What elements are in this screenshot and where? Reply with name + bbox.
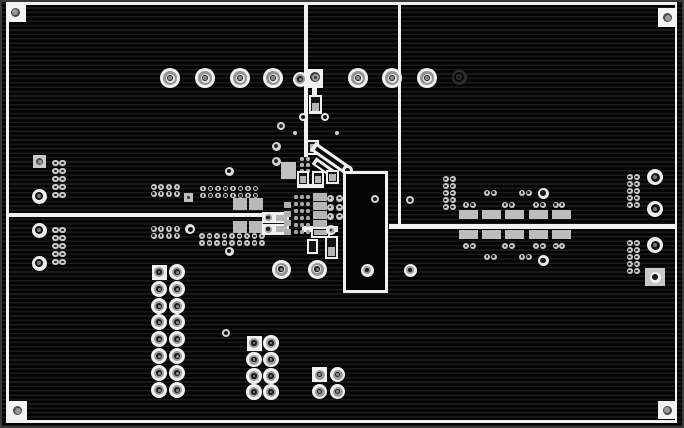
ic-pad-col-left: [284, 202, 291, 208]
via-stitch-grid: [444, 192, 446, 194]
header-pad-grid: [176, 372, 179, 375]
header-pad-grid: [158, 305, 161, 308]
pad-smd-square: [281, 162, 296, 179]
via-stitch-row: [554, 203, 556, 205]
outlined-pad: [300, 176, 306, 183]
pad-smd-square: [233, 198, 247, 210]
outlined-pad: [314, 230, 327, 235]
ic-dot-grid: [300, 195, 303, 198]
via-stitch-grid: [635, 256, 637, 258]
ic-dot-grid: [294, 195, 297, 198]
fiducial-hole-bottom-right: [664, 407, 670, 413]
dot-grid: [306, 163, 309, 166]
ic-dot-grid: [300, 216, 303, 219]
via-small: [323, 115, 327, 119]
via-stitch-grid: [61, 170, 63, 172]
header-pad-grid: [176, 355, 179, 358]
via-stitch-grid: [168, 227, 170, 229]
connector-b-pad-grid: [336, 373, 339, 376]
via-stitch-grid: [61, 253, 63, 255]
header-pad-grid: [158, 389, 161, 392]
via-small: [408, 198, 412, 202]
ic-dot-grid: [300, 202, 303, 205]
via-stitch-grid: [238, 235, 240, 237]
via-stitch-row: [504, 203, 506, 205]
via-medium: [540, 190, 546, 196]
via-large: [280, 268, 283, 271]
via-stitch-grid: [54, 178, 56, 180]
via-small: [373, 197, 377, 201]
via-stitch-grid: [635, 204, 637, 206]
via-stitch-grid: [217, 187, 219, 189]
board-outline-bottom: [6, 420, 676, 424]
via-medium: [365, 268, 369, 272]
pad-smd-rect: [482, 230, 501, 239]
via-stitch-grid: [176, 234, 178, 236]
via-stitch-row: [510, 203, 512, 205]
via-stitch-grid: [247, 187, 249, 189]
via-stitch-grid: [61, 186, 63, 188]
dot: [335, 131, 339, 135]
via-stitch-grid: [176, 227, 178, 229]
via-stitch-grid: [444, 178, 446, 180]
ic-pad-col-left: [284, 220, 291, 226]
via-stitch-grid: [209, 194, 211, 196]
header-pad-grid: [158, 355, 161, 358]
via-stitch-grid: [217, 194, 219, 196]
via-stitch-grid: [61, 229, 63, 231]
outlined-pad: [329, 174, 336, 181]
via-medium: [540, 258, 546, 264]
pad-square-top-center-hole: [314, 76, 317, 79]
board-outline-top: [6, 2, 676, 5]
pad-annular: [653, 207, 657, 211]
via-stitch-grid: [635, 242, 637, 244]
fiducial-hole-top-left: [12, 9, 18, 15]
pad-square-right-hole: [652, 274, 658, 280]
via-stitch-grid: [635, 183, 637, 185]
ic-pad-col-left: [284, 211, 291, 217]
via-stitch-grid: [223, 235, 225, 237]
ic-pad-col-right: [313, 202, 327, 210]
via-stitch-grid: [444, 185, 446, 187]
pad-smd-rect: [529, 230, 548, 239]
pad-smd-rect: [505, 210, 524, 219]
fiducial-hole-top-right: [665, 15, 671, 21]
via-stitch-grid: [628, 197, 630, 199]
via-stitch-grid: [54, 245, 56, 247]
via-stitch-grid: [635, 190, 637, 192]
via-medium: [408, 268, 412, 272]
via-stitch-grid: [635, 270, 637, 272]
via-small: [224, 331, 228, 335]
via-stitch-grid: [61, 178, 63, 180]
via-top-row: [356, 76, 359, 79]
header-pad-grid: [176, 288, 179, 291]
dot-grid: [300, 163, 303, 166]
pad-with-via-ring: [266, 216, 270, 220]
ic-dot-grid: [294, 209, 297, 212]
via-stitch-grid: [239, 187, 241, 189]
board-outline-right: [675, 2, 678, 423]
via-stitch-grid: [628, 176, 630, 178]
via-stitch-grid: [628, 190, 630, 192]
via-stitch-grid: [254, 194, 256, 196]
via-stitch-grid: [152, 192, 154, 194]
dot: [293, 131, 297, 135]
pad-smd-rect: [459, 230, 478, 239]
pad-small-square-dot: [187, 196, 190, 199]
via-stitch-row: [486, 255, 488, 257]
via-stitch-grid: [628, 249, 630, 251]
ic-dot-grid: [306, 230, 309, 233]
pad-smd-square: [249, 198, 263, 210]
pad-annular: [37, 194, 41, 198]
via-stitch-grid: [628, 242, 630, 244]
via-stitch-grid: [247, 194, 249, 196]
header-pad-grid: [176, 321, 179, 324]
pad-annular: [37, 261, 41, 265]
via-stitch-grid: [232, 194, 234, 196]
via-stitch-grid: [451, 199, 453, 201]
via-top-row: [168, 76, 171, 79]
fiducial-hole-bottom-left: [15, 408, 21, 414]
header-pad-grid: [176, 271, 179, 274]
via-stitch-grid: [444, 199, 446, 201]
via-stitch-row: [521, 191, 523, 193]
pad-smd-rect: [459, 210, 478, 219]
ic-dot-grid: [306, 209, 309, 212]
via-stitch-grid: [54, 186, 56, 188]
pad-square-left-hole: [38, 160, 42, 164]
via-stitch-grid: [202, 194, 204, 196]
trace-u-bottom: [297, 184, 324, 189]
connector-b-pad-grid: [318, 390, 321, 393]
pad-annular: [653, 175, 657, 179]
via-stitch-grid: [61, 237, 63, 239]
pour-split-right: [389, 224, 675, 229]
via-stitch-grid: [628, 183, 630, 185]
ic-dot-grid: [294, 202, 297, 205]
pcb-copper-layer-view: [0, 0, 684, 428]
connector-b-pad-grid: [336, 390, 339, 393]
via-stitch-grid: [253, 242, 255, 244]
via-stitch-grid: [635, 197, 637, 199]
via-stitch-grid: [152, 227, 154, 229]
dot-grid: [306, 157, 309, 160]
header-pad-grid: [176, 305, 179, 308]
via-stitch-row: [541, 203, 543, 205]
via-stitch-row: [554, 245, 556, 247]
via-stitch-grid: [451, 192, 453, 194]
via-stitch-grid: [338, 206, 341, 209]
via-stitch-grid: [208, 242, 210, 244]
via-stitch-grid: [628, 263, 630, 265]
via-top-row: [203, 76, 206, 79]
via-stitch-grid: [54, 229, 56, 231]
via-stitch-grid: [54, 253, 56, 255]
pad-annular: [653, 243, 657, 247]
via-stitch-row: [471, 203, 473, 205]
outlined-pad: [315, 176, 321, 183]
via-stitch-grid: [176, 192, 178, 194]
via-stitch-row: [561, 203, 563, 205]
via-stitch-grid: [54, 261, 56, 263]
via-top-row: [390, 76, 393, 79]
connector-b-pin1-rings: [318, 373, 321, 376]
via-stitch-row: [521, 255, 523, 257]
via-stitch-grid: [635, 176, 637, 178]
ic-dot-grid: [300, 209, 303, 212]
via-large: [316, 268, 319, 271]
header-pad-grid: [176, 389, 179, 392]
via-stitch-row: [510, 245, 512, 247]
ic-pad-col-left: [284, 229, 291, 235]
pour-split-left: [8, 213, 263, 217]
ic-dot-grid: [294, 223, 297, 226]
via-stitch-grid: [152, 234, 154, 236]
via-stitch-grid: [223, 242, 225, 244]
via-on-trace: [299, 78, 302, 81]
outlined-pad: [312, 103, 319, 111]
via-stitch-grid: [338, 197, 341, 200]
via-stitch-grid: [628, 256, 630, 258]
via-stitch-row: [465, 203, 467, 205]
via-stitch-row: [492, 191, 494, 193]
ic-dot-grid: [294, 230, 297, 233]
ic-dot-grid: [306, 223, 309, 226]
pad-with-via-ring: [266, 227, 270, 231]
via-small: [279, 124, 283, 128]
pad-smd-square: [249, 221, 263, 233]
via-stitch-grid: [152, 186, 154, 188]
ic-pad-col-right: [313, 193, 327, 201]
via-stitch-grid: [202, 187, 204, 189]
via-stitch-grid: [628, 270, 630, 272]
pad-smd-rect: [529, 210, 548, 219]
via-stitch-grid: [208, 235, 210, 237]
via-stitch-row: [541, 245, 543, 247]
via-stitch-grid: [54, 194, 56, 196]
ic-pad-col-right: [313, 211, 327, 219]
outlined-pad: [309, 241, 316, 252]
via-stitch-grid: [239, 194, 241, 196]
via-stitch-row: [527, 255, 529, 257]
ic-dot-grid: [306, 216, 309, 219]
via-stitch-grid: [444, 206, 446, 208]
dot-grid: [300, 157, 303, 160]
ic-dot-grid: [306, 202, 309, 205]
via-stitch-grid: [253, 235, 255, 237]
outlined-pad: [328, 247, 335, 256]
pad-smd-rect: [552, 210, 571, 219]
via-stitch-row: [471, 245, 473, 247]
via-stitch-grid: [61, 194, 63, 196]
via-stitch-grid: [224, 187, 226, 189]
pcb-board: [0, 0, 684, 428]
pad-smd-rect: [552, 230, 571, 239]
via-top-row: [238, 76, 241, 79]
via-stitch-grid: [232, 187, 234, 189]
via-stitch-grid: [168, 234, 170, 236]
header-pad-grid: [158, 321, 161, 324]
via-stitch-grid: [54, 237, 56, 239]
header-pad-grid: [176, 338, 179, 341]
via-stitch-row: [486, 191, 488, 193]
header-pad-grid: [158, 288, 161, 291]
via-stitch-grid: [451, 206, 453, 208]
via-stitch-row: [535, 203, 537, 205]
via-stitch-row: [527, 191, 529, 193]
header-pad-grid: [158, 338, 161, 341]
pad-smd-rect: [505, 230, 524, 239]
via-stitch-grid: [61, 261, 63, 263]
via-stitch-grid: [209, 187, 211, 189]
via-stitch-grid: [635, 249, 637, 251]
via-stitch-grid: [254, 187, 256, 189]
via-stitch-grid: [61, 245, 63, 247]
pad-annular: [37, 228, 41, 232]
via-stitch-grid: [54, 162, 56, 164]
via-stitch-grid: [635, 263, 637, 265]
ic-dot-grid: [300, 230, 303, 233]
pad-smd-rect: [482, 210, 501, 219]
via-stitch-grid: [451, 185, 453, 187]
via-stitch-grid: [451, 178, 453, 180]
via-stitch-row: [492, 255, 494, 257]
via-stitch-grid: [168, 192, 170, 194]
via-stitch-grid: [238, 242, 240, 244]
ic-dot-grid: [300, 223, 303, 226]
via-stitch-grid: [338, 215, 341, 218]
via-stitch-grid: [224, 194, 226, 196]
via-stitch-grid: [628, 204, 630, 206]
via-stitch-grid: [54, 170, 56, 172]
via-stitch-grid: [61, 162, 63, 164]
pad-smd-square: [233, 221, 247, 233]
ic-dot-grid: [294, 216, 297, 219]
via-top-row: [271, 76, 274, 79]
via-top-row: [425, 76, 428, 79]
via-small: [188, 227, 193, 232]
header-pad-grid: [158, 372, 161, 375]
via-small: [301, 115, 305, 119]
ic-dot-grid: [306, 195, 309, 198]
trace-vertical-2: [398, 4, 402, 226]
